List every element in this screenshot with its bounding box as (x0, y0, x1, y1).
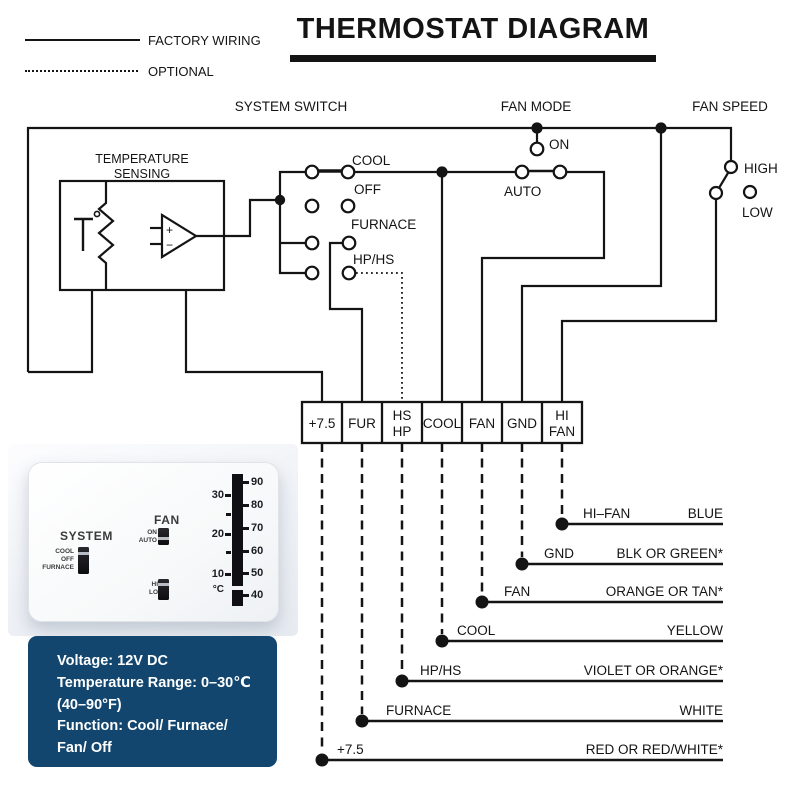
device-system-slider (78, 547, 89, 574)
device-fan-slider-thumb (158, 537, 169, 540)
spec-function-2: Fan/ Off (57, 738, 267, 760)
tick-f-70 (243, 527, 249, 530)
fan-speed-low-contact (744, 186, 756, 198)
wire-color-red: RED OR RED/WHITE* (586, 742, 724, 757)
tick-f-90 (243, 481, 249, 484)
scale-f-80: 80 (251, 499, 263, 511)
opamp-plus-sign: + (166, 223, 173, 237)
scale-f-40: 40 (251, 589, 263, 601)
device-system-furnace: FURNACE (29, 564, 74, 572)
temperature-sensing-label-line1: TEMPERATURE (95, 152, 189, 166)
hp-hs-contact-right (343, 267, 356, 280)
tick-f-60 (243, 550, 249, 553)
device-system-off: OFF (29, 556, 74, 564)
scale-unit-c: °C (195, 584, 224, 595)
device-temp-setpoint-indicator (232, 586, 243, 590)
hp-hs-position-label: HP/HS (353, 252, 394, 267)
fan-speed-high-contact (710, 187, 722, 199)
furnace-position-label: FURNACE (351, 217, 416, 232)
fan-on-contact (531, 143, 544, 156)
cool-position-label: COOL (352, 153, 391, 168)
fan-speed-common-contact (725, 161, 737, 173)
wire-color-orange-tan: ORANGE OR TAN* (606, 584, 724, 599)
device-system-slider-thumb (78, 552, 89, 555)
terminal-hifan: FAN (549, 424, 575, 439)
device-system-label: SYSTEM (60, 529, 113, 543)
device-speed-hi: HI (121, 581, 158, 589)
device-speed-slider-thumb (158, 583, 169, 586)
fan-mode-label: FAN MODE (501, 99, 572, 114)
device-speed-lo: LO (121, 589, 158, 597)
wire-name-fan: FAN (504, 584, 530, 599)
wire-name-plus75: +7.5 (337, 742, 364, 757)
junction-dots (275, 122, 667, 205)
terminal-hi: HI (555, 408, 569, 423)
thermostat-photo-background: SYSTEM COOL OFF FURNACE FAN ON AUTO HI L… (8, 444, 298, 636)
fan-auto-contact-left (516, 166, 529, 179)
spec-voltage: Voltage: 12V DC (57, 651, 267, 673)
tick-c-30 (225, 494, 231, 497)
tick-c-minor-2 (226, 551, 231, 554)
fan-low-label: LOW (742, 205, 773, 220)
plus75-feed-wire (186, 290, 322, 402)
scale-c-30: 30 (195, 489, 224, 501)
device-fan-label: FAN (154, 513, 180, 527)
tick-c-20 (225, 533, 231, 536)
system-switch-label: SYSTEM SWITCH (235, 99, 348, 114)
thermostat-diagram-page: THERMOSTAT DIAGRAM FACTORY WIRING OPTION… (0, 0, 800, 800)
fan-auto-label: AUTO (504, 184, 541, 199)
terminal-fur: FUR (348, 416, 376, 431)
tick-c-10 (225, 573, 231, 576)
hp-hs-contact-left (306, 267, 319, 280)
scale-c-20: 20 (195, 528, 224, 540)
fan-on-label: ON (549, 137, 569, 152)
thermistor-icon (99, 181, 113, 290)
spec-function: Function: Cool/ Furnace/ (57, 716, 267, 738)
tick-f-80 (243, 504, 249, 507)
terminal-gnd: GND (507, 416, 537, 431)
wire-name-hifan: HI–FAN (583, 506, 630, 521)
scale-f-70: 70 (251, 522, 263, 534)
off-position-label: OFF (354, 182, 381, 197)
off-contact-right (342, 200, 355, 213)
tick-c-minor-1 (226, 513, 231, 516)
off-contact-left (306, 200, 319, 213)
opamp-minus-sign: − (166, 238, 173, 252)
terminal-hs: HS (393, 408, 412, 423)
scale-f-60: 60 (251, 545, 263, 557)
cool-contact-left (306, 166, 319, 179)
spec-info-box: Voltage: 12V DC Temperature Range: 0–30℃… (28, 636, 277, 767)
fan-speed-label: FAN SPEED (692, 99, 768, 114)
terminal-cool: COOL (423, 416, 462, 431)
wire-name-gnd: GND (544, 546, 574, 561)
wire-color-violet-orange: VIOLET OR ORANGE* (584, 663, 724, 678)
wire-name-hphs: HP/HS (420, 663, 461, 678)
fan-auto-contact-right (554, 166, 567, 179)
scale-c-10: 10 (195, 568, 224, 580)
tick-f-50 (243, 572, 249, 575)
device-temp-scale-bar (232, 474, 243, 606)
scale-f-90: 90 (251, 476, 263, 488)
terminal-fan: FAN (469, 416, 495, 431)
fan-high-label: HIGH (744, 161, 778, 176)
wire-name-furnace: FURNACE (386, 703, 451, 718)
wire-color-white: WHITE (680, 703, 724, 718)
wire-color-blue: BLUE (688, 506, 723, 521)
spec-temp-range: Temperature Range: 0–30℃ (57, 673, 267, 695)
terminal-plus75: +7.5 (309, 416, 336, 431)
device-fan-slider (158, 528, 169, 545)
device-fan-on: ON (119, 529, 157, 537)
furnace-contact-right (343, 237, 356, 250)
tick-f-40 (243, 594, 249, 597)
scale-f-50: 50 (251, 567, 263, 579)
thermometer-icon (74, 211, 100, 251)
device-system-cool: COOL (29, 548, 74, 556)
spec-temp-range-f: (40–90°F) (57, 695, 267, 717)
wire-color-yellow: YELLOW (667, 623, 724, 638)
thermostat-device: SYSTEM COOL OFF FURNACE FAN ON AUTO HI L… (28, 462, 279, 622)
wire-name-cool: COOL (457, 623, 496, 638)
wire-color-blk-green: BLK OR GREEN* (616, 546, 723, 561)
device-fan-auto: AUTO (119, 537, 157, 545)
temperature-sensing-label-line2: SENSING (114, 167, 170, 181)
furnace-contact-left (306, 237, 319, 250)
device-speed-slider (158, 579, 169, 600)
terminal-hp: HP (393, 424, 412, 439)
